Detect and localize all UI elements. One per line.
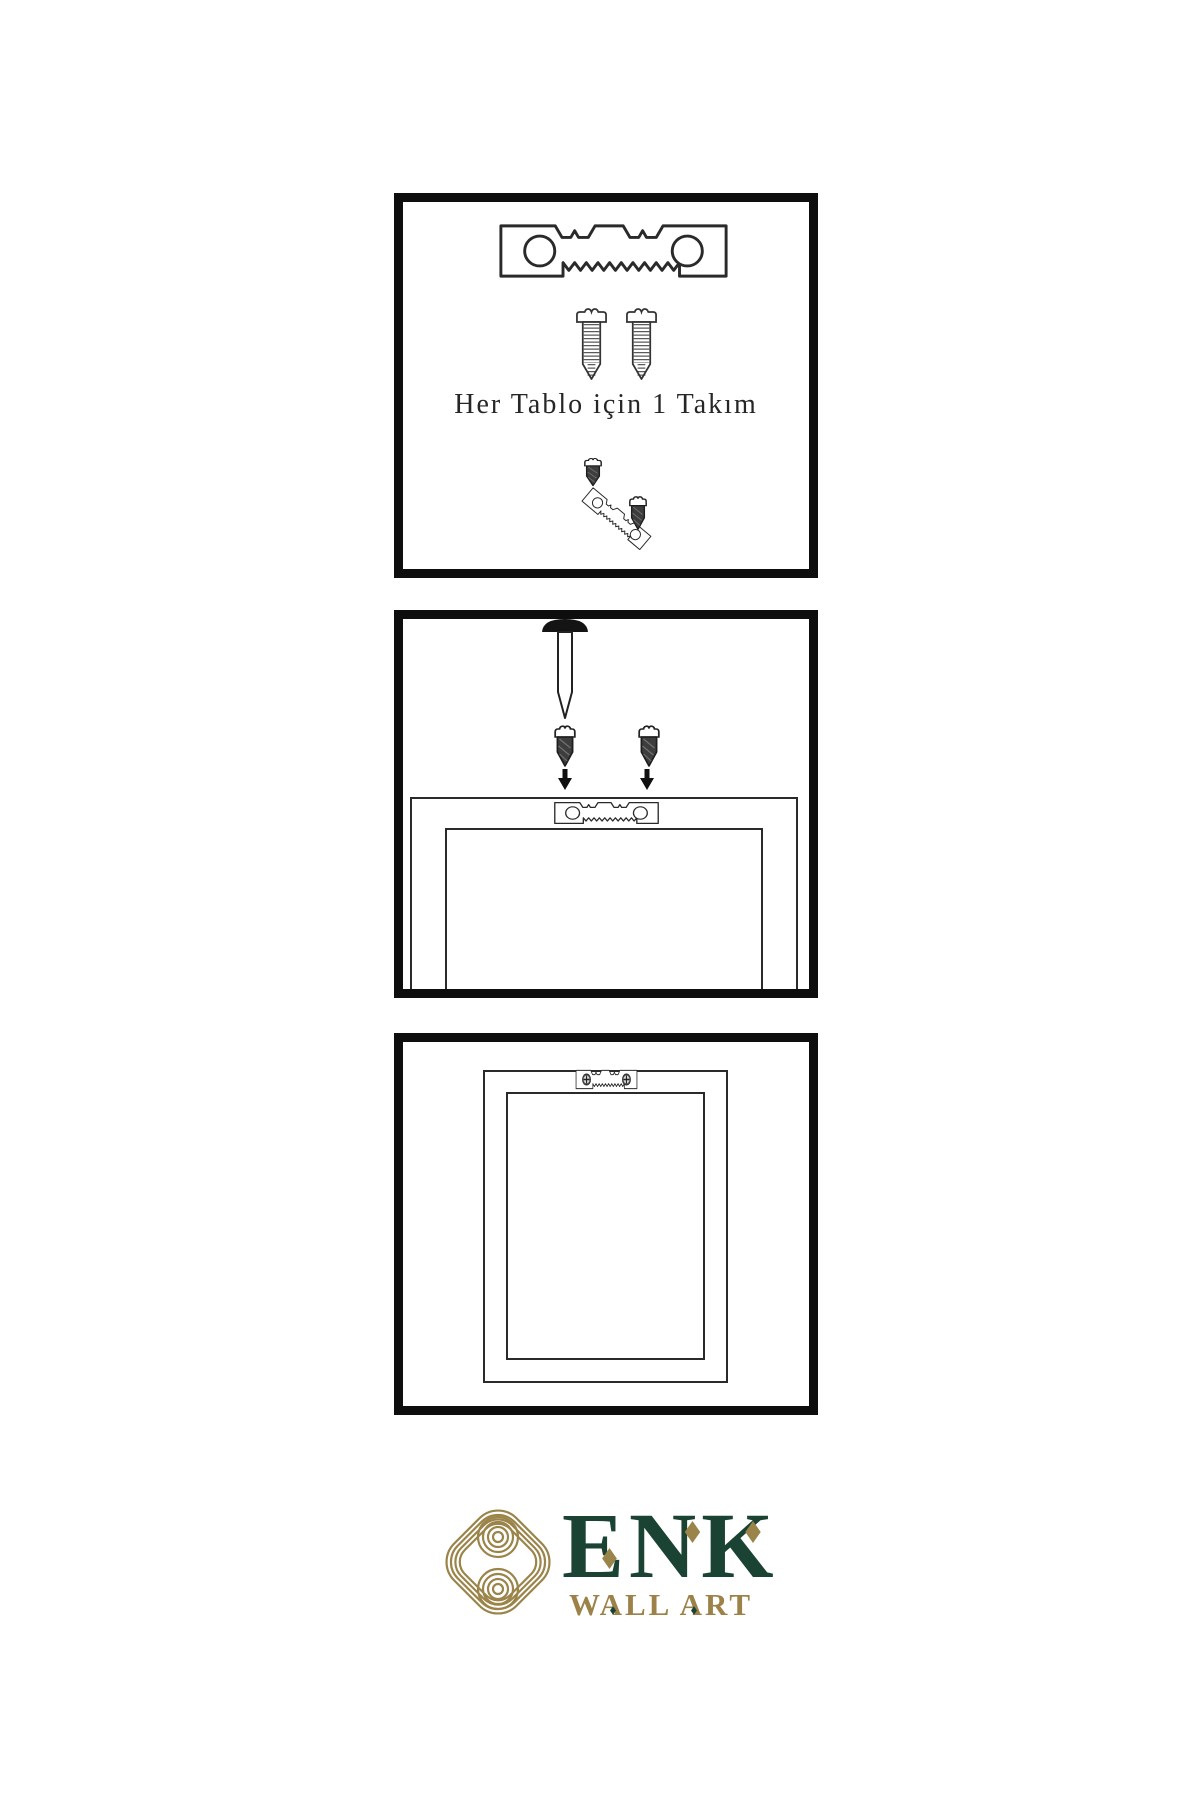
instruction-sheet: Her Tablo için 1 Takım (0, 0, 1200, 1800)
diamond-accent-icon (602, 1548, 617, 1569)
knot-logo-icon (438, 1496, 558, 1628)
screw-icon (575, 306, 608, 382)
panel-mounting-step (394, 610, 818, 998)
diamond-accent-icon (684, 1521, 701, 1543)
diamond-dot-icon (610, 1606, 616, 1615)
down-arrow-icon (640, 769, 654, 790)
panel-hardware-kit: Her Tablo için 1 Takım (394, 193, 818, 578)
wall-nail-icon (542, 619, 588, 721)
logo-title: ENK (562, 1500, 779, 1593)
screw-icon (553, 724, 577, 768)
diamond-accent-icon (744, 1521, 762, 1543)
screw-icon (625, 306, 658, 382)
panel-hanging-result (394, 1033, 818, 1415)
down-arrow-icon (558, 769, 572, 790)
sawtooth-hanger-icon (497, 222, 730, 280)
sawtooth-hanger-icon (553, 801, 660, 825)
kit-caption: Her Tablo için 1 Takım (403, 391, 809, 419)
logo-subtitle: WALL ART (569, 1589, 753, 1620)
screw-into-tilted-hanger-icon (553, 438, 658, 550)
screw-icon (637, 724, 661, 768)
frame-back-inner (445, 828, 763, 989)
frame-back-inner (506, 1092, 705, 1360)
mounted-sawtooth-hanger-icon (575, 1069, 638, 1090)
diamond-dot-icon (691, 1606, 697, 1615)
